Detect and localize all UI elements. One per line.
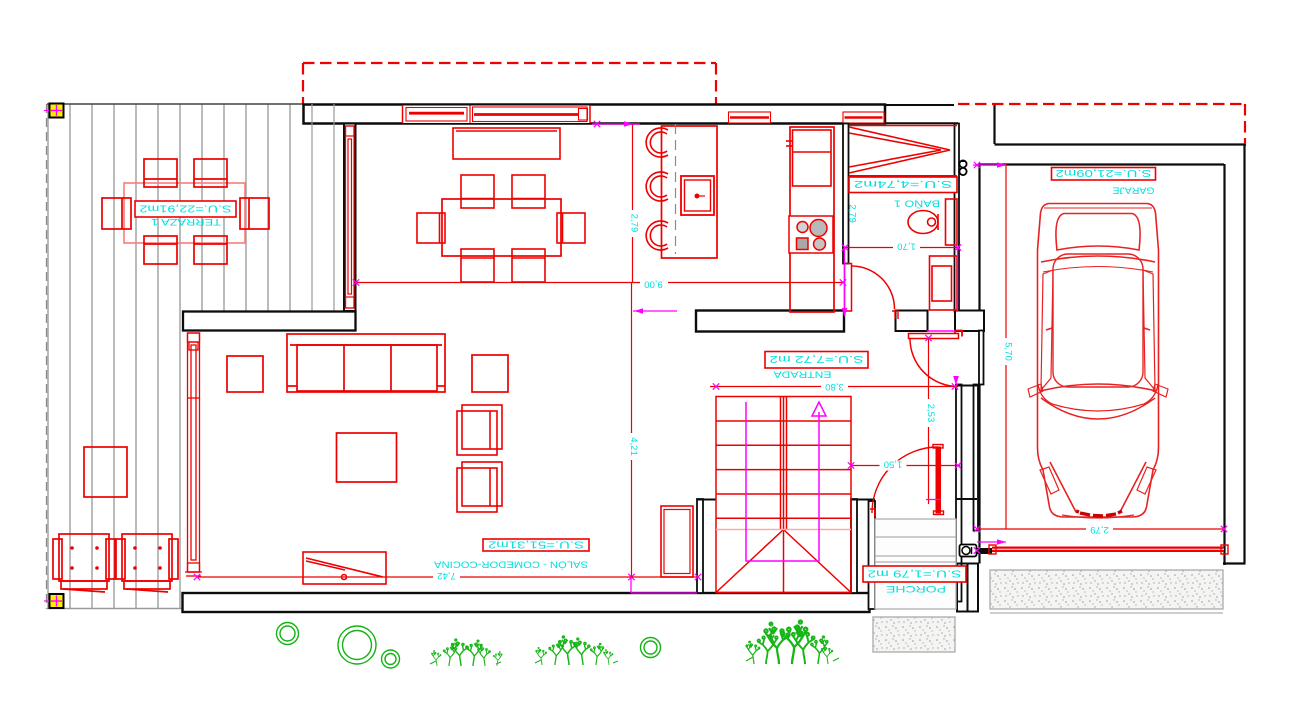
svg-text:S.U.=22,91m2: S.U.=22,91m2 [139, 203, 231, 215]
svg-text:2,79: 2,79 [629, 214, 640, 233]
svg-text:7,42: 7,42 [437, 570, 456, 581]
svg-text:S.U.=7,72 m2: S.U.=7,72 m2 [769, 353, 863, 365]
svg-text:PORCHE: PORCHE [886, 583, 946, 594]
svg-text:4,21: 4,21 [628, 437, 639, 456]
svg-text:S.U.=51,31m2: S.U.=51,31m2 [487, 539, 584, 550]
svg-text:3,80: 3,80 [825, 381, 844, 392]
svg-text:S.U.=21,09m2: S.U.=21,09m2 [1055, 167, 1152, 178]
svg-text:BAÑO 1: BAÑO 1 [894, 198, 940, 209]
svg-text:GARAJE: GARAJE [1113, 184, 1155, 195]
svg-text:9,00: 9,00 [644, 278, 663, 289]
svg-text:2,79: 2,79 [1090, 524, 1109, 535]
svg-text:S.U.=4,74m2: S.U.=4,74m2 [854, 178, 952, 190]
svg-text:2,53: 2,53 [925, 404, 936, 423]
svg-text:SALÓN - COMEDOR-COCINA: SALÓN - COMEDOR-COCINA [433, 558, 588, 569]
svg-text:5,70: 5,70 [1003, 342, 1014, 361]
svg-text:S.U.=1,79 m2: S.U.=1,79 m2 [867, 567, 961, 579]
svg-text:1,70: 1,70 [897, 241, 916, 252]
svg-text:ENTRADA: ENTRADA [773, 368, 832, 379]
svg-text:1,50: 1,50 [884, 459, 903, 470]
svg-text:TERRAZA 1: TERRAZA 1 [151, 216, 221, 227]
svg-text:2,79: 2,79 [847, 204, 858, 223]
